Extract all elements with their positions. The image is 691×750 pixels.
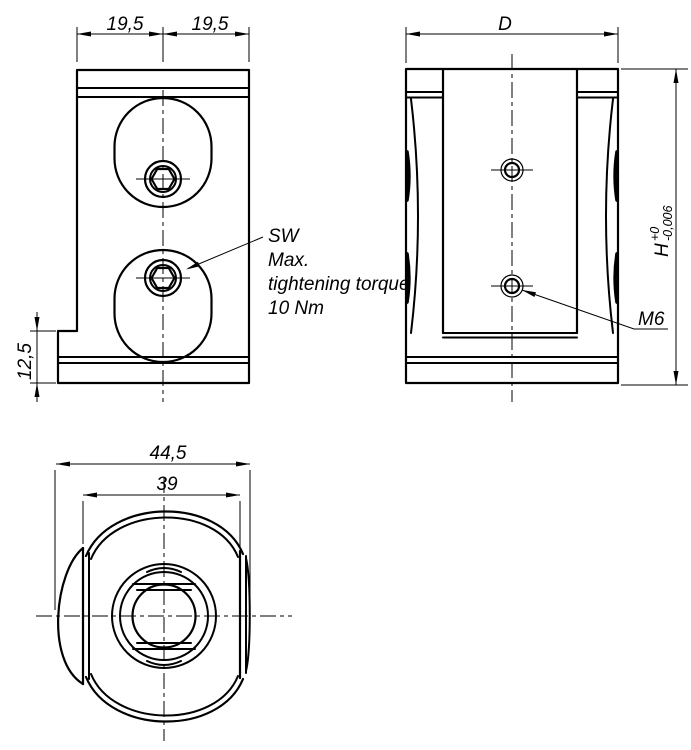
arrowhead (149, 32, 163, 37)
arrowhead (163, 32, 177, 37)
dimension-12-5: 12,5 (15, 312, 56, 402)
dim-label-39: 39 (156, 474, 178, 495)
arrowhead (522, 290, 536, 297)
note-line-value: 10 Nm (268, 298, 324, 319)
arrowhead (186, 262, 200, 270)
arrowhead (56, 462, 70, 467)
technical-drawing-page: 19,5 19,5 12,5 SW Max. tightening torque… (0, 0, 691, 750)
dim-label-12-5: 12,5 (15, 343, 36, 380)
m6-callout: M6 (522, 290, 668, 330)
dim-label-H: H (652, 243, 673, 257)
leader-line (188, 237, 263, 269)
arrowhead (77, 32, 91, 37)
dimension-19-5-pair: 19,5 19,5 (77, 14, 249, 62)
arrowhead (604, 32, 618, 37)
note-line-sw: SW (268, 226, 301, 247)
dim-label-19-5-left: 19,5 (107, 14, 144, 35)
note-line-max: Max. (268, 250, 309, 271)
note-line-torque: tightening torque (268, 274, 410, 295)
dim-label-44-5: 44,5 (150, 443, 187, 464)
arrowhead (35, 317, 40, 331)
thread-label-m6: M6 (638, 309, 665, 330)
arrowhead (83, 493, 97, 498)
dimension-H: H +0 -0,006 (621, 69, 688, 385)
dim-label-H-group: H +0 -0,006 (648, 206, 675, 257)
bottom-view: 44,5 39 (36, 443, 292, 741)
front-outline (58, 70, 249, 383)
dim-label-H-tol-lower: -0,006 (661, 206, 675, 241)
drawing-canvas: 19,5 19,5 12,5 SW Max. tightening torque… (0, 0, 691, 750)
arrowhead (674, 69, 679, 83)
side-inner-face-bottom (443, 333, 577, 338)
arrowhead (236, 462, 250, 467)
arrowhead (35, 383, 40, 397)
dim-label-D: D (498, 14, 512, 35)
arrowhead (226, 493, 240, 498)
arrowhead (406, 32, 420, 37)
arrowhead (235, 32, 249, 37)
arrowhead (674, 371, 679, 385)
side-view: D H +0 -0,006 M6 (406, 14, 688, 402)
tightening-torque-note: SW Max. tightening torque 10 Nm (186, 226, 410, 319)
dim-label-H-tol-upper: +0 (648, 227, 662, 241)
front-view: 19,5 19,5 12,5 SW Max. tightening torque… (15, 14, 410, 402)
dim-label-19-5-right: 19,5 (192, 14, 229, 35)
